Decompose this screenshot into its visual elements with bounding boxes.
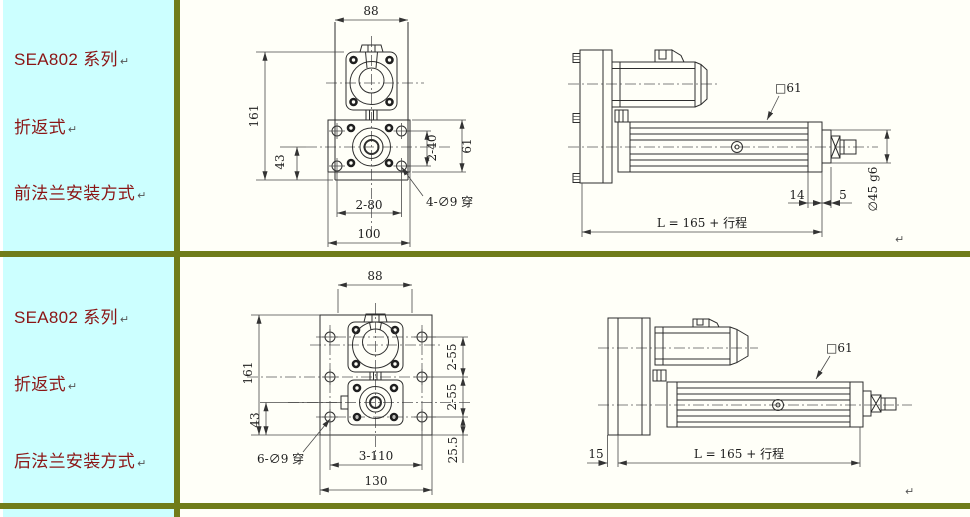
style-label: 折返式↵ — [14, 113, 77, 138]
dim-offset-left: 43 — [273, 154, 287, 169]
paragraph-mark: ↵ — [895, 233, 904, 246]
catalog-page: SEA802 系列↵ 折返式↵ 前法兰安装方式↵ SEA802 系列↵ 折返式↵… — [0, 0, 970, 517]
dim-width-top: 88 — [367, 269, 382, 283]
drawing-cell-rear-flange: 88 161 43 6-∅9 穿 3-110 130 — [180, 257, 970, 503]
front-view-dimensions: 88 161 43 6-∅9 穿 3-110 130 — [241, 269, 468, 495]
dim-spacer-len: 5 — [839, 188, 847, 202]
flange-screws — [573, 54, 580, 183]
dim-offset-left: 43 — [248, 412, 262, 427]
series-text: SEA802 系列 — [14, 308, 118, 327]
front-flange-side-view-drawing: □61 ∅45 g6 14 5 L = 165 + 行程 ↵ — [560, 0, 970, 251]
series-label: SEA802 系列↵ — [14, 45, 129, 70]
side-view-dimensions: □61 15 L = 165 + 行程 ↵ — [587, 341, 914, 498]
dim-overall-length: L = 165 + 行程 — [694, 446, 784, 461]
dim-overall-width: 130 — [365, 474, 388, 488]
paragraph-mark: ↵ — [905, 485, 914, 498]
dim-overall-width: 100 — [358, 227, 381, 241]
sidebar-front-flange: SEA802 系列↵ 折返式↵ 前法兰安装方式↵ — [3, 0, 174, 251]
style-text: 折返式 — [14, 118, 66, 137]
rear-flange-front-view-drawing: 88 161 43 6-∅9 穿 3-110 130 — [180, 257, 560, 503]
series-label: SEA802 系列↵ — [14, 303, 129, 328]
sidebar-next-row-sliver — [3, 509, 174, 517]
series-text: SEA802 系列 — [14, 50, 118, 69]
style-text: 折返式 — [14, 375, 66, 394]
paragraph-mark: ↵ — [137, 457, 147, 470]
square-size-label: □61 — [826, 341, 853, 355]
drawing-cell-next-row-sliver — [180, 509, 970, 517]
dim-hole-pitch-right-1: 2-55 — [445, 344, 459, 371]
dim-overall-length: L = 165 + 行程 — [657, 215, 747, 230]
mounting-label: 前法兰安装方式↵ — [14, 179, 147, 204]
hole-note: 6-∅9 穿 — [257, 451, 304, 466]
dim-hole-pitch-right-2: 2-55 — [445, 384, 459, 411]
square-size-label: □61 — [775, 81, 802, 95]
dim-bottom-offset-right: 25.5 — [446, 437, 460, 464]
front-view-geometry — [247, 303, 470, 459]
shaft-dia-label: ∅45 g6 — [866, 167, 880, 212]
front-flange-front-view-drawing: 88 161 43 2-80 100 2-40 61 — [180, 0, 560, 251]
paragraph-mark: ↵ — [68, 123, 78, 136]
dim-hole-pitch-right: 2-40 — [425, 135, 439, 162]
dim-plate-height-right: 61 — [460, 138, 474, 153]
hole-note: 4-∅9 穿 — [426, 194, 473, 209]
mounting-text: 后法兰安装方式 — [14, 452, 135, 471]
dim-hole-pitch-bottom: 3-110 — [359, 449, 394, 463]
paragraph-mark: ↵ — [120, 55, 130, 68]
dim-height-left: 161 — [241, 362, 255, 385]
dim-width-top: 88 — [363, 4, 378, 18]
front-view-dimensions: 88 161 43 2-80 100 2-40 61 — [247, 4, 474, 247]
mounting-label: 后法兰安装方式↵ — [14, 447, 147, 472]
paragraph-mark: ↵ — [137, 189, 147, 202]
dim-block-len: 14 — [789, 188, 805, 202]
rear-flange-side-view-drawing: □61 15 L = 165 + 行程 ↵ — [560, 257, 970, 503]
dim-height-left: 161 — [247, 105, 261, 128]
drawing-cell-front-flange: 88 161 43 2-80 100 2-40 61 — [180, 0, 970, 251]
paragraph-mark: ↵ — [120, 313, 130, 326]
paragraph-mark: ↵ — [68, 380, 78, 393]
style-label: 折返式↵ — [14, 370, 77, 395]
dim-hole-pitch-bottom: 2-80 — [356, 198, 383, 212]
dim-plate-thickness: 15 — [588, 447, 603, 461]
sidebar-rear-flange: SEA802 系列↵ 折返式↵ 后法兰安装方式↵ — [3, 257, 174, 503]
side-view-geometry — [598, 318, 912, 435]
mounting-text: 前法兰安装方式 — [14, 184, 135, 203]
